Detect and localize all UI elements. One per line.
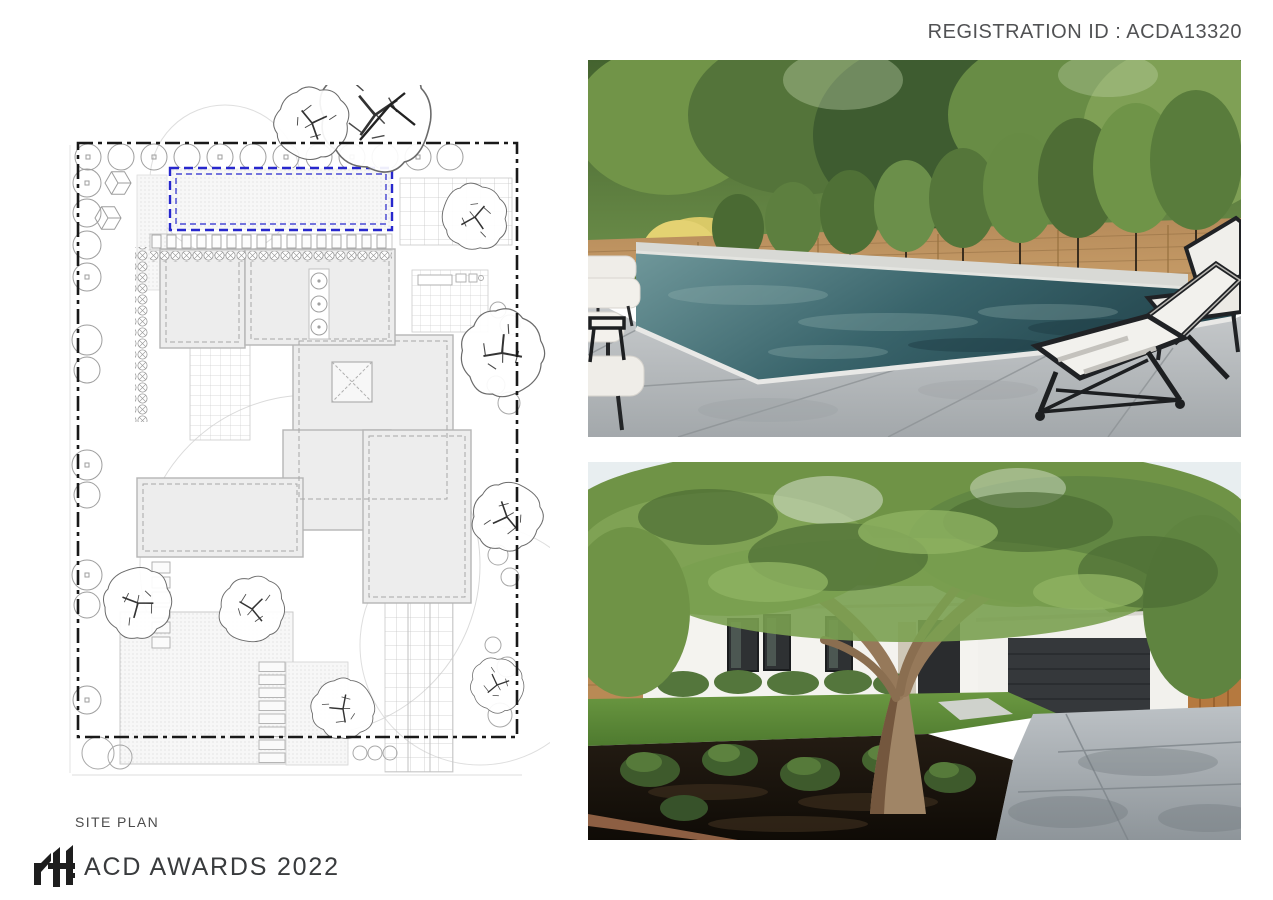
rtf-logo-svg [33,845,75,889]
footer-brand: ACD AWARDS 2022 [33,845,340,889]
rtf-logo-icon [33,845,75,889]
house-photo-illustration [588,462,1241,840]
site-plan-drawing [60,85,550,790]
site-plan-svg [60,85,550,790]
site-plan-caption: SITE PLAN [75,814,159,830]
presentation-board: REGISTRATION ID : ACDA13320 [0,0,1273,900]
registration-id: REGISTRATION ID : ACDA13320 [928,21,1242,44]
pool-photo-illustration [588,60,1241,437]
pool-photo [588,60,1241,437]
award-title: ACD AWARDS 2022 [84,853,340,882]
house-photo [588,462,1241,840]
